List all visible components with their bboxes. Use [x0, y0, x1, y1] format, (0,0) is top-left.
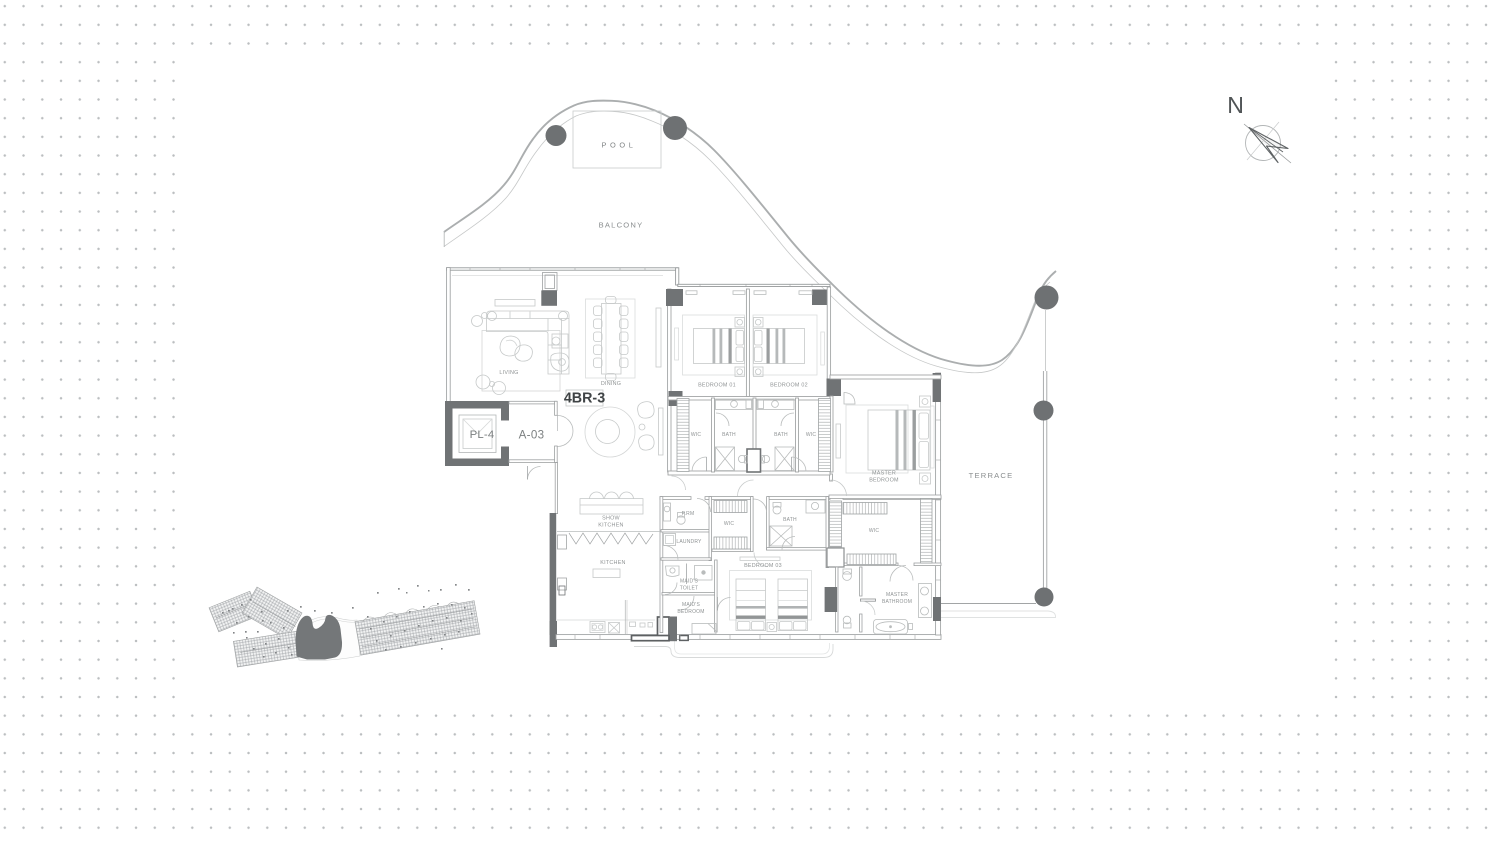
svg-text:MASTER: MASTER [886, 592, 908, 598]
svg-text:KITCHEN: KITCHEN [600, 560, 625, 566]
svg-text:BATHROOM: BATHROOM [882, 599, 912, 605]
svg-text:LIVING: LIVING [499, 370, 518, 376]
svg-text:WIC: WIC [691, 432, 702, 438]
svg-text:DINING: DINING [601, 381, 621, 387]
svg-text:BEDROOM 03: BEDROOM 03 [744, 563, 782, 569]
svg-text:WIC: WIC [724, 521, 735, 527]
svg-text:WIC: WIC [806, 432, 817, 438]
svg-text:POOL: POOL [602, 141, 637, 150]
svg-text:BEDROOM 01: BEDROOM 01 [698, 383, 736, 389]
svg-text:MAID'S: MAID'S [682, 602, 700, 608]
svg-text:BATH: BATH [722, 432, 736, 438]
svg-text:WIC: WIC [869, 528, 880, 534]
svg-text:N: N [1227, 92, 1244, 118]
svg-text:PL-4: PL-4 [470, 429, 495, 441]
svg-text:KITCHEN: KITCHEN [598, 523, 623, 529]
svg-text:BATH: BATH [774, 432, 788, 438]
svg-text:P.RM: P.RM [682, 511, 695, 517]
svg-text:BEDROOM 02: BEDROOM 02 [770, 383, 808, 389]
svg-text:BEDROOM: BEDROOM [677, 609, 704, 615]
svg-text:BALCONY: BALCONY [599, 221, 644, 230]
svg-text:TERRACE: TERRACE [969, 471, 1014, 480]
svg-text:LAUNDRY: LAUNDRY [676, 539, 702, 545]
svg-text:BATH: BATH [783, 517, 797, 523]
svg-text:A-03: A-03 [519, 429, 545, 442]
svg-text:SHOW: SHOW [602, 516, 620, 522]
svg-text:BEDROOM: BEDROOM [869, 478, 899, 484]
svg-text:4BR-3: 4BR-3 [564, 391, 605, 407]
svg-text:TOILET: TOILET [680, 586, 699, 592]
svg-text:MASTER: MASTER [872, 471, 896, 477]
svg-text:MAID'S: MAID'S [680, 579, 698, 585]
